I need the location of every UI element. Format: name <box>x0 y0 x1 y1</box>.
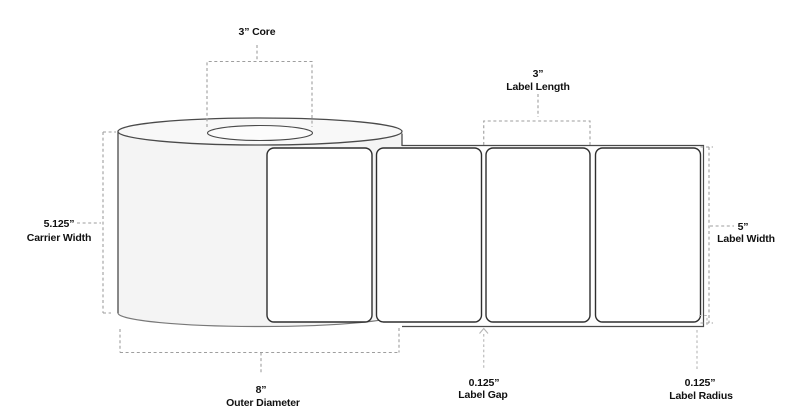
label-gap-caption: Label Gap <box>458 389 507 401</box>
roll-core-hole <box>208 126 313 141</box>
label-rect-2 <box>377 148 482 322</box>
label-radius-caption: Label Radius <box>669 390 733 402</box>
label-gap-value: 0.125” <box>469 377 500 389</box>
label-rect-1 <box>267 148 372 322</box>
diagram-canvas: 3” Core 3” Label Length 5.125” Carrier W… <box>0 0 798 419</box>
carrier-width-value: 5.125” <box>44 218 75 230</box>
up-arrow-icon <box>480 329 489 334</box>
label-rect-4 <box>596 148 701 322</box>
core-bracket <box>207 62 312 128</box>
core-callout: 3” Core <box>239 26 276 38</box>
outer-diameter-value: 8” <box>256 384 267 396</box>
label-rect-3 <box>486 148 590 322</box>
carrier-width-caption: Carrier Width <box>27 232 91 244</box>
outer-diameter-caption: Outer Diameter <box>226 397 300 409</box>
label-roll-diagram: 3” Core 3” Label Length 5.125” Carrier W… <box>0 0 798 419</box>
label-radius-value: 0.125” <box>685 377 716 389</box>
label-length-bracket <box>484 121 590 145</box>
label-length-value: 3” <box>533 68 544 80</box>
label-width-caption: Label Width <box>717 233 775 245</box>
label-length-caption: Label Length <box>506 81 570 93</box>
label-width-value: 5” <box>738 221 749 233</box>
